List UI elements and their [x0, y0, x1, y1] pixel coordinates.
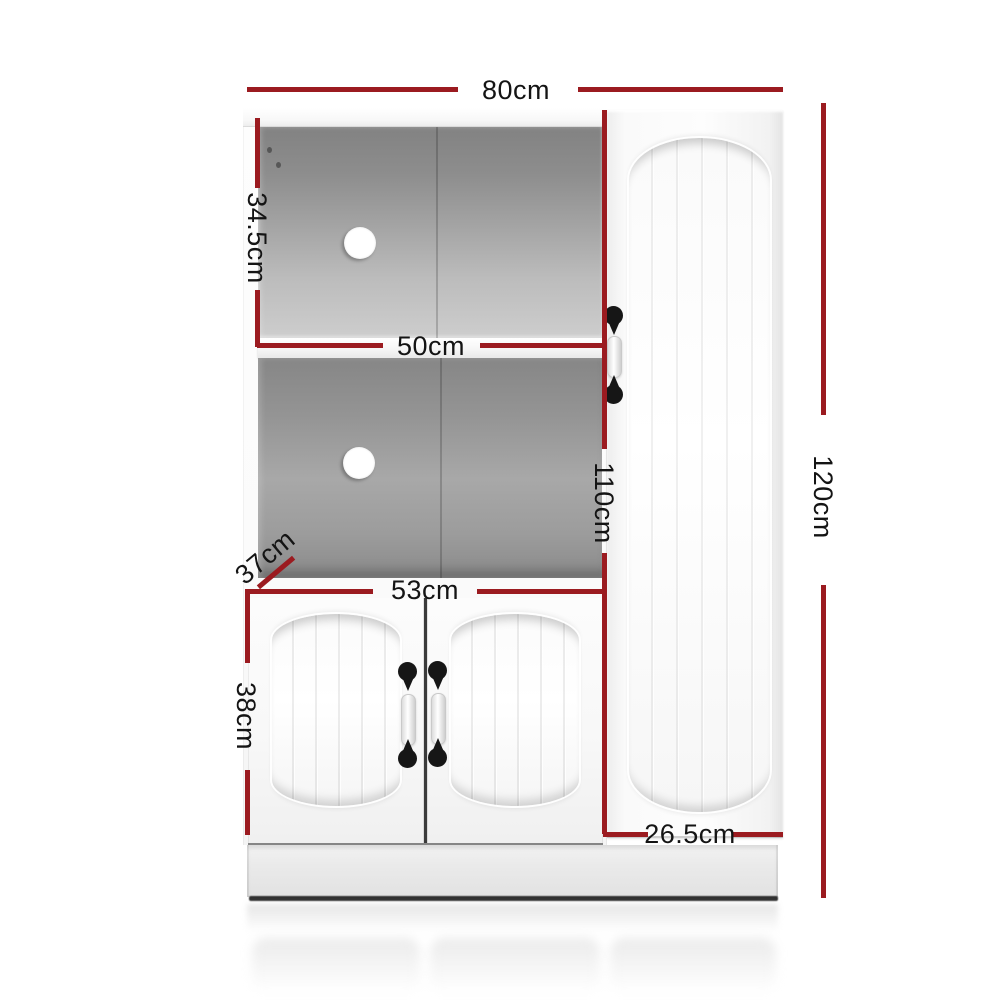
dim-label-overall-width: 80cm [441, 75, 591, 105]
lower-right-door-panel [451, 614, 579, 806]
handle-knob [428, 661, 447, 680]
handle-knob [398, 749, 417, 768]
reflection-band [247, 904, 778, 932]
back-panel-seam [440, 358, 442, 578]
upper-open-compartment [258, 127, 602, 338]
dim-label-shelf-width: 50cm [356, 331, 506, 361]
shelf-pin-hole [276, 162, 281, 168]
floor-shadow [249, 896, 778, 901]
dim-label-lower-doors-height: 38cm [231, 641, 261, 791]
dim-label-tall-door-width: 26.5cm [615, 819, 765, 849]
product-dimension-diagram: 80cm 34.5cm 50cm 110cm 120cm 37cm 53cm 3… [0, 0, 1000, 1000]
dim-line-overall-width-left [247, 87, 458, 92]
lower-left-door-panel [272, 614, 400, 806]
dim-label-overall-height: 120cm [808, 422, 838, 572]
cabinet-top-panel [243, 108, 607, 127]
dim-line-overall-height-top [821, 103, 826, 415]
back-panel-seam [436, 127, 438, 338]
dim-label-upper-compartment-height: 34.5cm [242, 163, 272, 313]
dim-line-overall-height-bottom [821, 585, 826, 898]
handle-knob [428, 748, 447, 767]
handle-knob [398, 662, 417, 681]
dim-line-overall-width-right [578, 87, 783, 92]
dim-label-tall-door-height: 110cm [589, 428, 619, 578]
lower-open-compartment [258, 358, 602, 578]
cable-hole [343, 447, 375, 479]
kickboard [247, 845, 778, 897]
tall-door-panel [629, 138, 770, 812]
dim-label-lower-doors-width: 53cm [350, 575, 500, 605]
reflection-blob [430, 938, 600, 993]
reflection-blob [252, 938, 420, 993]
reflection-blob [610, 938, 776, 993]
dim-line-tall-door-height-bottom [602, 553, 607, 834]
dim-line-tall-door-height-top [602, 110, 607, 449]
cable-hole [344, 227, 376, 259]
handle-spindle [607, 336, 622, 378]
shelf-pin-hole [267, 147, 272, 153]
door-gap [424, 598, 427, 843]
